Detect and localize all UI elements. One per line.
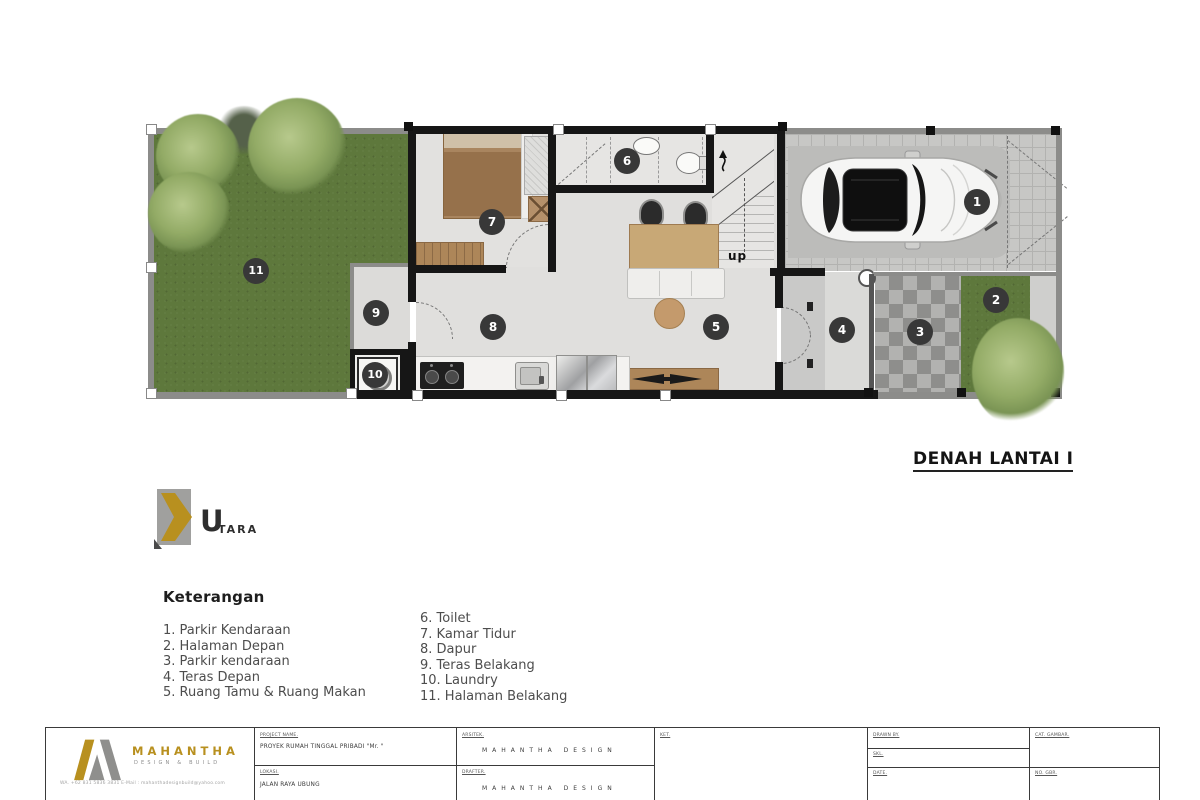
wall-terrace-right (869, 274, 874, 393)
room-badge: 7 (479, 209, 505, 235)
burner (445, 370, 459, 384)
wall-building-bottom (350, 390, 878, 399)
tree-icon (248, 98, 346, 196)
room-badge: 1 (964, 189, 990, 215)
legend-item: 6. Toilet (420, 611, 567, 627)
wall-garage-side (777, 126, 785, 276)
title-block-divider (1029, 728, 1030, 800)
project-name-label: PROJECT NAME. (260, 733, 298, 738)
legend-item: 5. Ruang Tamu & Ruang Makan (163, 685, 366, 701)
legend-item: 1. Parkir Kendaraan (163, 623, 366, 639)
dining-table (629, 224, 719, 270)
sink-basin (520, 367, 541, 385)
title-block-divider (867, 728, 868, 800)
column-marker (957, 388, 966, 397)
column-marker (556, 390, 567, 401)
column-marker (146, 388, 157, 399)
company-tagline: DESIGN & BUILD (134, 760, 220, 766)
room-badge: 10 (362, 362, 388, 388)
wall-bedroom-left (408, 126, 416, 272)
category-label: CAT. GAMBAR. (1035, 733, 1069, 738)
title-block-divider (1029, 767, 1159, 768)
column-marker (346, 388, 357, 399)
room-badge: 8 (480, 314, 506, 340)
legend-item: 8. Dapur (420, 642, 567, 658)
faucet (539, 376, 544, 384)
column-marker (404, 122, 413, 131)
wall-living-right-upper (775, 276, 783, 308)
legend-item: 10. Laundry (420, 673, 567, 689)
company-name: MAHANTHA (132, 744, 239, 758)
legend-item: 3. Parkir kendaraan (163, 654, 366, 670)
bed-pillow (444, 132, 524, 148)
title-block-divider (254, 728, 255, 800)
wall-laundry-right (400, 349, 408, 394)
coffee-table (654, 298, 685, 329)
column-marker (778, 122, 787, 131)
legend-column-right: 6. Toilet 7. Kamar Tidur 8. Dapur 9. Ter… (420, 611, 567, 705)
column-marker (1051, 126, 1060, 135)
drawing-title: DENAH LANTAI I (913, 449, 1073, 472)
title-block-divider (654, 728, 655, 800)
column-marker (146, 262, 157, 273)
wall-building-top (408, 126, 785, 134)
title-block-divider (867, 767, 1029, 768)
north-label-rest: TARA (218, 523, 258, 536)
title-block-divider (867, 748, 1029, 749)
boundary-wall-carport-top (783, 128, 1062, 134)
stove-knob (430, 364, 433, 367)
architect-value: MAHANTHA DESIGN (482, 747, 617, 754)
fridge-divider (586, 356, 588, 393)
legend-heading: Keterangan (163, 588, 265, 606)
legend-item: 7. Kamar Tidur (420, 627, 567, 643)
wall-kitchen-left-lower (408, 342, 416, 394)
stove-knob (450, 364, 453, 367)
burner (425, 370, 439, 384)
floor-plan-sheet: up (0, 0, 1200, 800)
room-badge: 4 (829, 317, 855, 343)
drawn-by-label: DRAWN BY. (873, 733, 899, 738)
stair-direction-arrow-icon (716, 150, 731, 172)
entry-door-leaf (807, 302, 813, 311)
room-badge: 2 (983, 287, 1009, 313)
sofa (627, 268, 725, 299)
drafter-label: DRAFTER. (462, 770, 486, 775)
legend-item: 2. Halaman Depan (163, 639, 366, 655)
boundary-line-terrace9 (350, 263, 412, 267)
entry-door-leaf (807, 359, 813, 368)
gate-line (1007, 136, 1008, 268)
wall-kitchen-left-upper (408, 272, 416, 302)
wall-toilet-bottom (552, 185, 712, 193)
room-badge: 5 (703, 314, 729, 340)
stair-up-label: up (728, 249, 747, 263)
location-value: JALAN RAYA UBUNG (260, 782, 320, 788)
project-name-value: PROYEK RUMAH TINGGAL PRIBADI "Mr. " (260, 744, 384, 750)
wall-terrace-top (770, 268, 825, 276)
column-marker (412, 390, 423, 401)
stair-centerline (744, 178, 745, 252)
north-arrow-icon (152, 487, 198, 549)
column-marker (146, 124, 157, 135)
wall-bedroom-bottom (408, 265, 506, 273)
company-contact: WA. +62 831 5836 3831 E-Mail : mahanthad… (60, 781, 250, 786)
console-decor-icon (632, 373, 702, 385)
room-badge: 3 (907, 319, 933, 345)
north-arrow: U TARA (152, 487, 272, 549)
architect-label: ARSITEK. (462, 733, 484, 738)
dining-chair (639, 199, 664, 227)
kitchen-sink-icon (515, 362, 549, 390)
tree-icon (972, 318, 1064, 426)
legend-column-left: 1. Parkir Kendaraan 2. Halaman Depan 3. … (163, 623, 366, 701)
mahantha-logo-icon (71, 736, 125, 782)
bed (443, 131, 525, 219)
room-badge: 6 (614, 148, 640, 174)
column-marker (553, 124, 564, 135)
sofa-cushion-line (691, 271, 692, 296)
boundary-line-front (873, 272, 1062, 276)
column-marker (705, 124, 716, 135)
drafter-value: MAHANTHA DESIGN (482, 785, 617, 792)
stove-icon (420, 362, 464, 389)
shower-screen-line (610, 137, 611, 183)
column-marker (864, 388, 873, 397)
scale-label: SKL. (873, 752, 884, 757)
room-badge: 11 (243, 258, 269, 284)
title-block: MAHANTHA DESIGN & BUILD WA. +62 831 5836… (45, 727, 1160, 800)
column-marker (926, 126, 935, 135)
wall-stair-left (706, 126, 714, 193)
note-label: KET. (660, 733, 670, 738)
wall-bedroom-right (548, 126, 556, 272)
legend-item: 4. Teras Depan (163, 670, 366, 686)
title-block-divider (456, 728, 457, 800)
legend-item: 9. Teras Belakang (420, 658, 567, 674)
date-label: DATE. (873, 771, 887, 776)
sheet-label: NO. GBR. (1035, 771, 1057, 776)
tv-console (616, 368, 719, 390)
sofa-cushion-line (659, 271, 660, 296)
company-logo-cell: MAHANTHA DESIGN & BUILD WA. +62 831 5836… (46, 728, 254, 800)
location-label: LOKASI. (260, 770, 279, 775)
refrigerator-icon (556, 355, 617, 394)
room-badge: 9 (363, 300, 389, 326)
legend-item: 11. Halaman Belakang (420, 689, 567, 705)
column-marker (660, 390, 671, 401)
tree-icon (148, 172, 230, 254)
title-block-divider (254, 765, 654, 766)
bed-blanket (444, 152, 524, 216)
